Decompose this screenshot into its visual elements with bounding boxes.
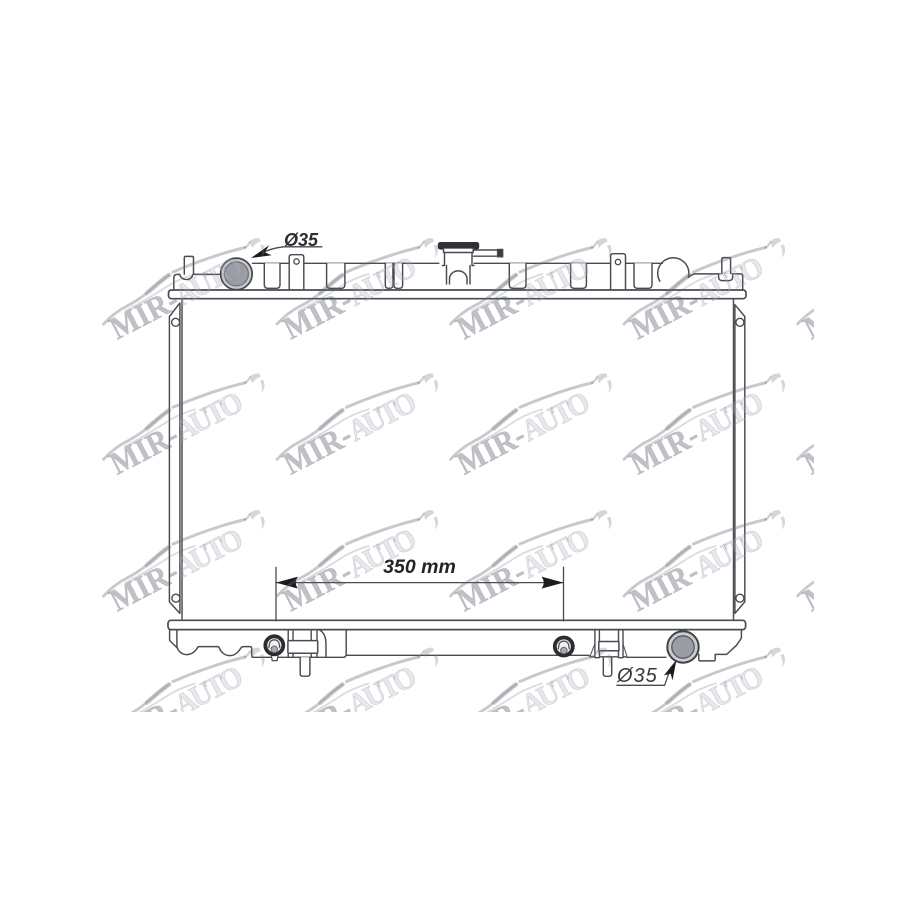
svg-text:Ø35: Ø35 bbox=[616, 665, 658, 687]
